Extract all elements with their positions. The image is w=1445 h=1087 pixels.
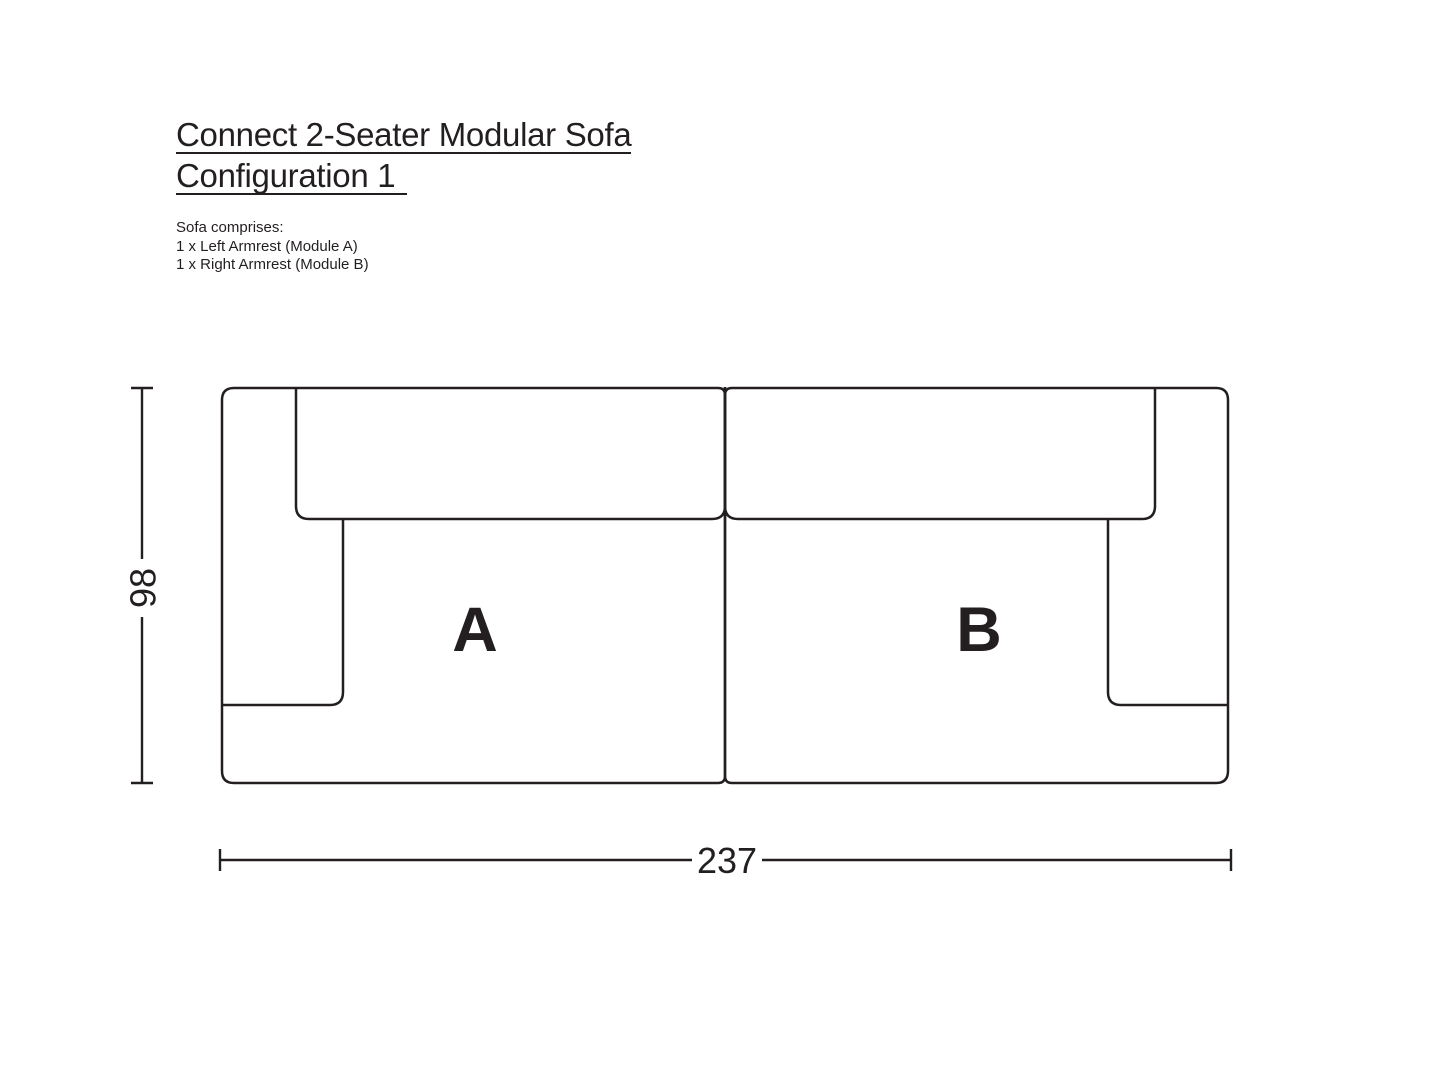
sofa-spec-sheet: Connect 2-Seater Modular Sofa Configurat…: [0, 0, 1445, 1087]
module-b-armrest: [1108, 518, 1229, 705]
module-b-label: B: [956, 595, 1002, 665]
height-dimension-line: 98: [123, 388, 164, 783]
height-dimension-value: 98: [123, 568, 164, 608]
module-b-backrest-cushion: [725, 387, 1155, 519]
width-dimension-value: 237: [697, 840, 757, 881]
module-b-outline: [725, 388, 1228, 783]
module-a-outline: [222, 388, 725, 783]
sofa-plan-diagram: 98 237 A B: [0, 0, 1445, 1087]
module-a-backrest-cushion: [296, 387, 725, 519]
module-a-label: A: [452, 595, 498, 665]
module-a-armrest: [221, 518, 343, 705]
width-dimension-line: 237: [220, 840, 1231, 881]
